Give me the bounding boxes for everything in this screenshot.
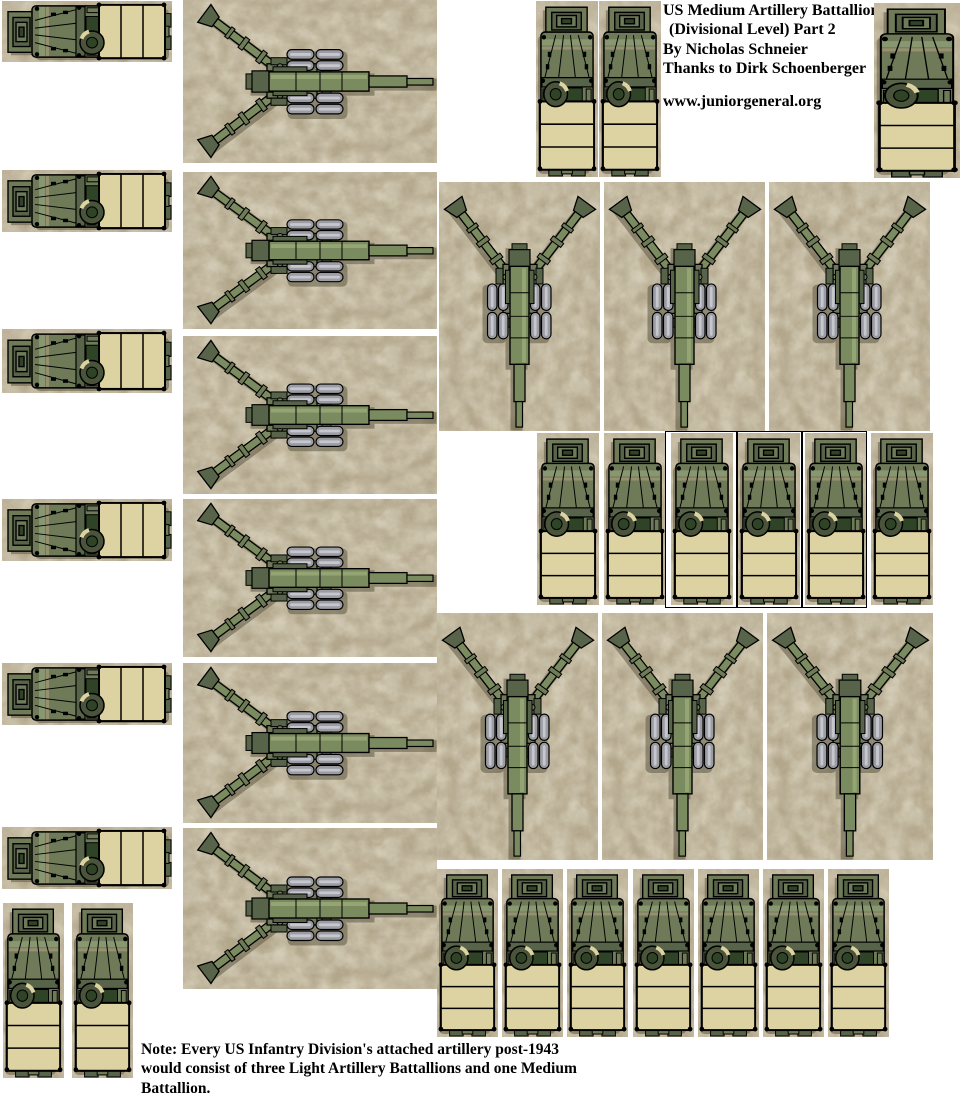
- truck-counter: [502, 869, 563, 1037]
- howitzer-counter: [769, 182, 930, 431]
- note-line: would consist of three Light Artillery B…: [141, 1059, 577, 1078]
- howitzer-counter: [183, 336, 437, 494]
- truck-counter: [72, 903, 133, 1078]
- truck-counter: [805, 433, 867, 605]
- truck-counter: [2, 170, 172, 232]
- truck-counter: [2, 663, 172, 725]
- howitzer-counter: [183, 172, 437, 329]
- title-block: US Medium Artillery Battallion (Division…: [663, 1, 879, 111]
- howitzer-counter: [183, 828, 437, 989]
- howitzer-counter: [439, 182, 600, 431]
- truck-counter: [698, 869, 759, 1037]
- truck-counter: [599, 1, 661, 177]
- truck-counter: [567, 869, 628, 1037]
- truck-counter: [604, 433, 666, 605]
- howitzer-counter: [604, 182, 765, 431]
- truck-counter: [763, 869, 824, 1037]
- sheet-title: US Medium Artillery Battallion: [663, 1, 879, 20]
- truck-counter: [2, 1, 172, 62]
- truck-counter: [3, 903, 64, 1078]
- truck-counter: [633, 869, 694, 1037]
- howitzer-counter: [437, 613, 598, 860]
- counter-sheet: US Medium Artillery Battallion (Division…: [0, 0, 962, 1096]
- howitzer-counter: [183, 663, 437, 823]
- howitzer-counter: [767, 613, 933, 860]
- truck-counter: [2, 499, 172, 561]
- truck-counter: [537, 433, 599, 605]
- sheet-author: By Nicholas Schneier: [663, 40, 879, 59]
- truck-counter: [671, 433, 733, 605]
- truck-counter: [874, 3, 960, 178]
- note-block: Note: Every US Infantry Division's attac…: [141, 1040, 577, 1096]
- howitzer-counter: [602, 613, 763, 860]
- sheet-credit: Thanks to Dirk Schoenberger: [663, 59, 879, 78]
- note-line: Battallion.: [141, 1079, 577, 1096]
- truck-counter: [2, 827, 172, 889]
- sheet-subtitle: (Divisional Level) Part 2: [663, 20, 879, 39]
- howitzer-counter: [183, 499, 437, 657]
- truck-counter: [738, 433, 800, 605]
- truck-counter: [437, 869, 498, 1037]
- truck-counter: [536, 1, 598, 177]
- note-line: Note: Every US Infantry Division's attac…: [141, 1040, 577, 1059]
- truck-counter: [828, 869, 889, 1037]
- truck-counter: [2, 329, 172, 393]
- truck-counter: [871, 433, 933, 605]
- website-url: www.juniorgeneral.org: [663, 92, 879, 111]
- howitzer-counter: [183, 0, 437, 163]
